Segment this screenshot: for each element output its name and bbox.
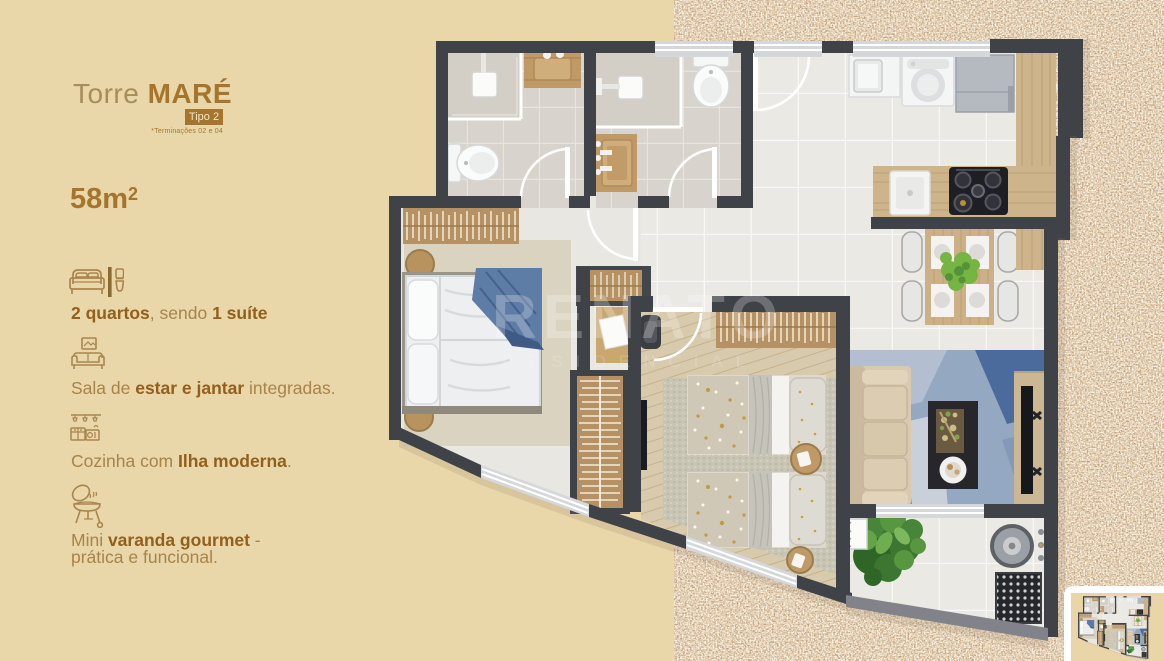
svg-text:RESIDENCIAL: RESIDENCIAL (502, 352, 758, 371)
svg-text:RENATO: RENATO (492, 283, 784, 352)
